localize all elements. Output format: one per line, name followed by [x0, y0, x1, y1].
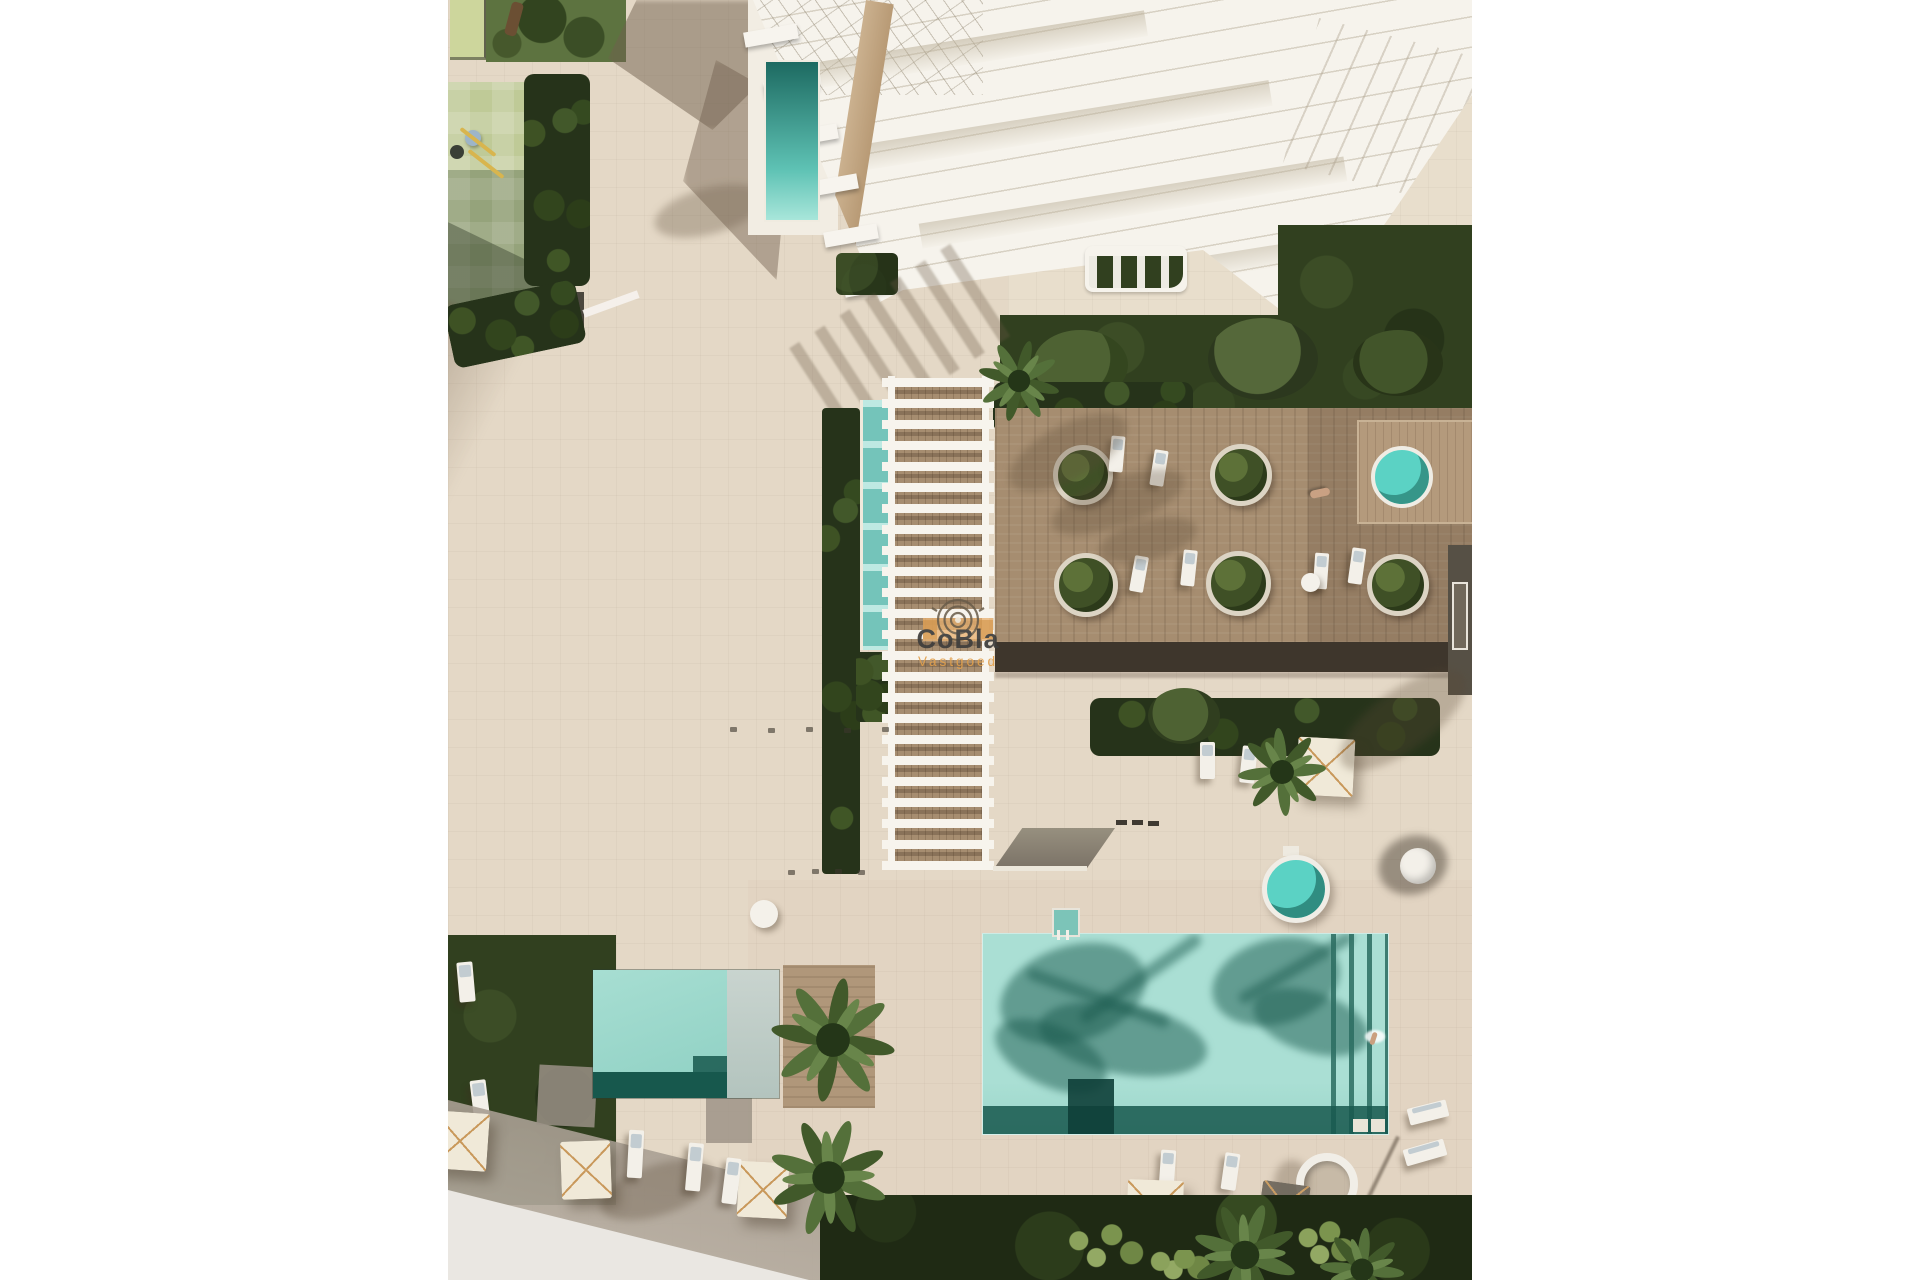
step-dash: [1148, 821, 1159, 826]
kids-pool-step: [693, 1056, 727, 1072]
pool-corner-step: [1353, 1119, 1368, 1132]
deck-dark-band: [995, 642, 1472, 672]
tree-canopy: [1148, 688, 1220, 744]
playground-roof: [450, 0, 487, 60]
pool-platform-dark: [1068, 1079, 1114, 1134]
gray-deck-patch: [536, 1065, 597, 1128]
tree-canopy: [1353, 330, 1443, 396]
watermark-brand: CoBla: [906, 624, 1010, 655]
deck-edge-shadow: [995, 672, 1472, 678]
round-table: [750, 900, 778, 928]
pool-corner-step: [1371, 1119, 1385, 1132]
lounger-row: [627, 1130, 644, 1179]
watermark: CoBla Vastgoed: [906, 586, 1010, 686]
parasol-southwest: [560, 1140, 612, 1200]
egg-chair: [1400, 848, 1436, 884]
pergola-rail-west: [888, 376, 895, 870]
kids-pool: [593, 970, 779, 1098]
rooftop-pool: [764, 60, 820, 222]
pergola-foot-dot: [788, 870, 795, 875]
aerial-render-photo: CoBla Vastgoed: [448, 0, 1472, 1280]
paving-anchor-dot: [844, 728, 851, 733]
kids-pool-deep-band: [593, 1072, 727, 1098]
play-wheel: [450, 145, 464, 159]
tree-canopy: [1208, 318, 1318, 400]
pool-shadow-band: [983, 1106, 1388, 1134]
grass-lounger: [456, 961, 475, 1002]
pergola-foot-dot: [858, 870, 865, 875]
parasol-west-clipped: [448, 1110, 490, 1172]
pool-ladder: [1057, 930, 1069, 940]
watermark-tagline: Vastgoed: [906, 654, 1010, 669]
paving-anchor-dot: [806, 727, 813, 732]
main-pool: [982, 933, 1389, 1135]
hedge-lap-pool-west: [822, 408, 860, 874]
garden-pocket-grass: [1089, 256, 1183, 288]
paving-anchor-dot: [730, 727, 737, 732]
round-planter: [1206, 551, 1271, 616]
paving-anchor-dot: [882, 727, 889, 732]
hedge-playground-east: [524, 74, 590, 286]
round-planter: [1054, 553, 1118, 617]
render-page: CoBla Vastgoed: [0, 0, 1920, 1280]
round-planter: [1367, 554, 1429, 616]
deck-side-table: [1301, 573, 1320, 592]
step-dash: [1132, 820, 1143, 825]
south-jacuzzi-pool: [1262, 855, 1330, 923]
round-planter: [1210, 444, 1272, 506]
pergola-foot-dot: [812, 869, 819, 874]
palm-tree: [758, 965, 909, 1116]
step-dash: [1116, 820, 1127, 825]
garden-pocket-railing: [1085, 246, 1187, 292]
awning-edge: [993, 866, 1087, 871]
lounger: [1200, 742, 1215, 779]
deck-jacuzzi-pool: [1371, 446, 1433, 508]
bench-east: [1452, 582, 1468, 650]
pergola-foot-dot: [835, 869, 842, 874]
paving-anchor-dot: [768, 728, 775, 733]
